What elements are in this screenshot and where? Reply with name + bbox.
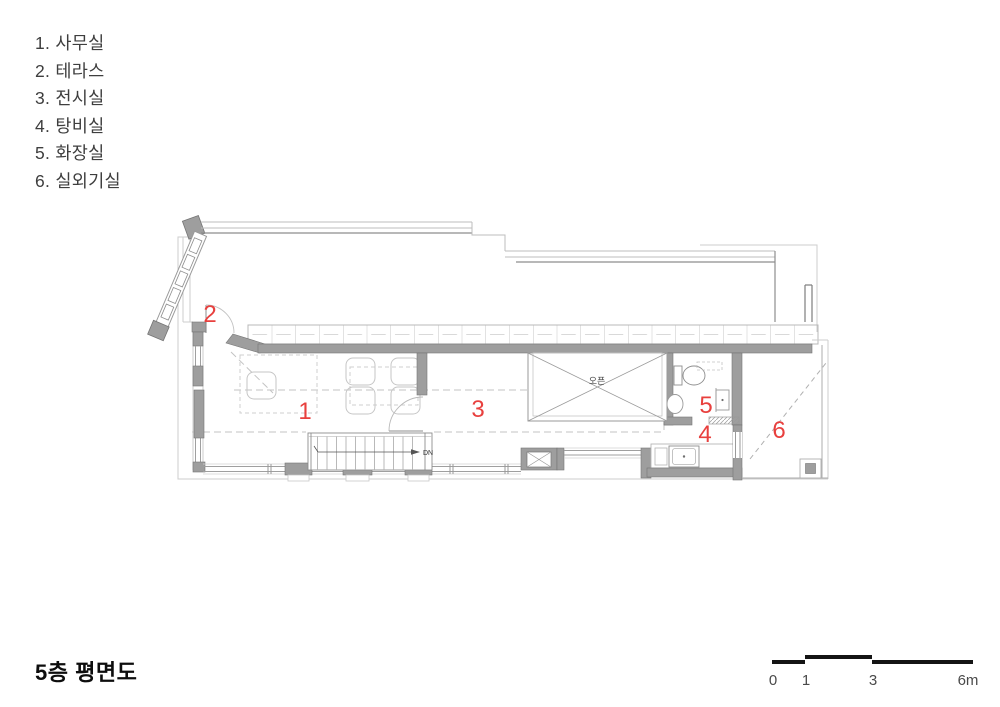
desk-chair <box>247 372 276 399</box>
walls <box>192 322 828 481</box>
pantry-counter <box>647 444 742 477</box>
meeting-table <box>350 367 418 405</box>
room-label-toilet: 5 <box>699 392 712 419</box>
outdoor-unit-room <box>733 340 828 480</box>
room-label-office: 1 <box>298 398 311 425</box>
void-opening: 오픈 <box>528 353 667 421</box>
duct-shaft <box>521 448 557 470</box>
staircase: DN <box>308 433 433 470</box>
room-label-pantry: 4 <box>698 421 711 448</box>
scale-segment-0-1 <box>772 660 805 664</box>
open-louver-dashed <box>750 363 826 459</box>
partition-wall <box>417 353 427 395</box>
scale-label-1: 1 <box>791 672 821 689</box>
lower-floor-outline <box>178 237 828 479</box>
stair-direction-label: DN <box>423 450 433 457</box>
scale-label-3: 3 <box>858 672 888 689</box>
door-sill <box>709 417 739 424</box>
scale-label-6m: 6m <box>953 672 983 689</box>
scale-segment-3-6 <box>872 660 973 664</box>
floor-plan: 오픈 DN 1 2 3 4 5 <box>0 0 1000 707</box>
toilet-fixture <box>674 366 705 385</box>
scale-segment-1-3 <box>805 655 872 659</box>
room-label-exhibition: 3 <box>471 396 484 423</box>
parapet-window <box>805 285 812 322</box>
north-wall <box>258 344 812 353</box>
west-wall <box>192 322 206 472</box>
room-label-terrace: 2 <box>203 301 216 328</box>
window-sills <box>288 475 429 481</box>
vanity-counter <box>716 388 729 412</box>
corner-column <box>800 459 821 478</box>
terrace-area <box>148 215 818 344</box>
room-label-outdoor-unit: 6 <box>772 417 785 444</box>
south-window-raised <box>557 448 651 478</box>
wash-basin <box>667 395 683 414</box>
plan-title: 5층 평면도 <box>35 655 137 687</box>
meeting-chairs <box>346 358 420 414</box>
office-furniture <box>240 355 420 414</box>
terrace-tile-band <box>248 325 818 344</box>
scale-label-0: 0 <box>758 672 788 689</box>
void-label: 오픈 <box>589 376 606 386</box>
